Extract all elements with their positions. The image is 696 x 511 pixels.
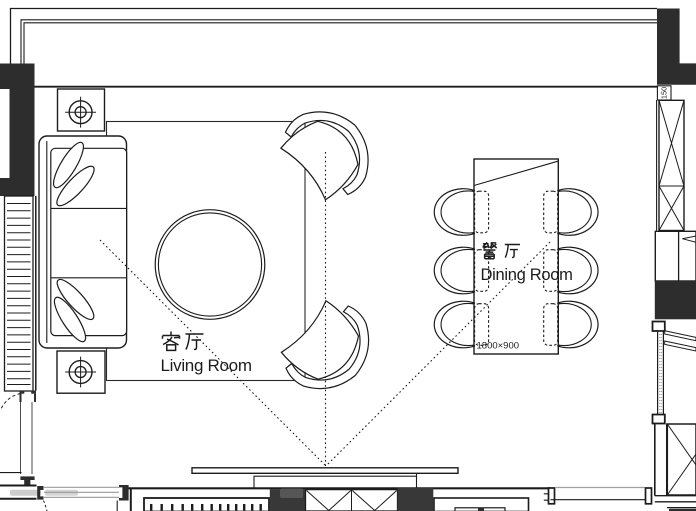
svg-text:Living Room: Living Room xyxy=(161,356,252,375)
svg-text:Dining Room: Dining Room xyxy=(481,266,573,284)
svg-text:150: 150 xyxy=(660,87,669,100)
svg-text:1800×900: 1800×900 xyxy=(477,341,520,352)
